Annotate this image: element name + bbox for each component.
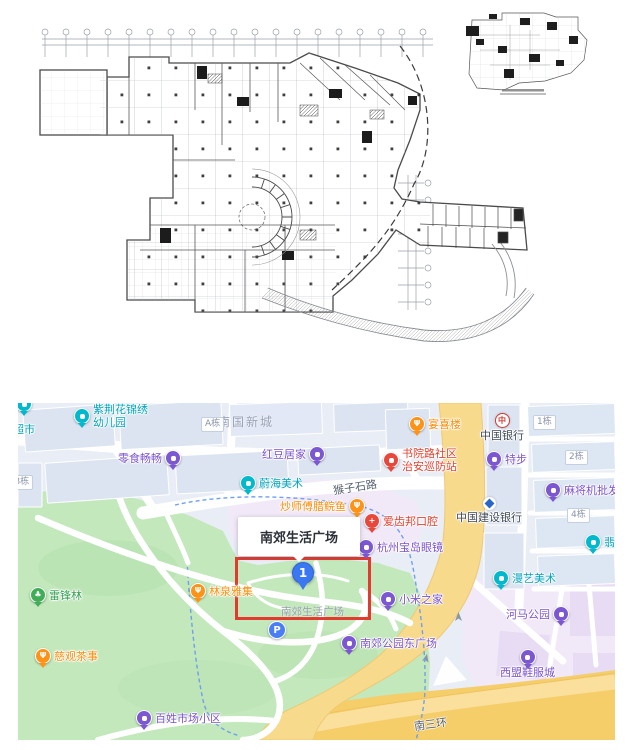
building-pill-a: A栋: [201, 417, 224, 432]
building-pill-1: 1栋: [533, 415, 556, 430]
building-pill-b: B栋: [18, 475, 33, 490]
district-label: 南国新城: [218, 413, 274, 430]
store-pin-icon: [520, 649, 536, 665]
poi-baixing[interactable]: 百姓市场小区: [136, 710, 221, 726]
popup-title: 南郊生活广场: [260, 527, 338, 546]
poi-manyi[interactable]: 漫艺美术: [493, 570, 556, 586]
poi-hongdou[interactable]: 红豆居家: [262, 446, 325, 462]
store-pin-icon: [545, 482, 561, 498]
axis-grid-top: [42, 29, 433, 57]
poi-linquan[interactable]: Ψ 林泉雅集: [190, 583, 253, 599]
store-pin-icon: [358, 539, 374, 555]
floorplan-section: [0, 0, 640, 395]
poi-supermarket[interactable]: 超市: [18, 423, 35, 436]
art-pin-icon: [240, 475, 256, 491]
food-pin-icon: Ψ: [409, 416, 425, 432]
art-pin-icon: [493, 570, 509, 586]
food-pin-icon: Ψ: [35, 648, 51, 664]
poi-leifenglin[interactable]: ♣ 雷锋林: [30, 587, 82, 603]
keyplan-inset: [466, 13, 587, 94]
building-pill-4: 4栋: [567, 508, 590, 523]
store-pin-icon: [380, 591, 396, 607]
poi-yanxilou[interactable]: Ψ 宴喜楼: [409, 416, 461, 432]
tree-pin-icon: ♣: [30, 587, 46, 603]
food-pin-icon: Ψ: [349, 498, 365, 514]
poi-kindergarten[interactable]: 紫荆花锦绣 幼儿园: [74, 403, 148, 429]
map-marker-icon[interactable]: 1: [292, 562, 314, 584]
park-pin-icon: [553, 606, 569, 622]
bank-logo-icon: [483, 497, 496, 510]
poi-ccb-bank[interactable]: 中国建设银行: [456, 497, 522, 524]
map-section[interactable]: 南郊生活广场 1 P 南郊生活广场 南国新城 猴子石路 南三环 A栋 B栋 1栋…: [18, 403, 615, 740]
clinic-pin-icon: +: [364, 513, 380, 529]
poi-weihai[interactable]: 蔚海美术: [240, 475, 303, 491]
store-pin-icon: [585, 534, 601, 550]
poi-bank-of-china[interactable]: 中 中国银行: [480, 413, 524, 442]
poi-chaoshifu[interactable]: 炒师傅腊鲩鱼 Ψ: [280, 498, 365, 514]
building-pill-2: 2栋: [565, 450, 588, 465]
poi-ximeng[interactable]: 西盟鞋服城: [500, 649, 555, 679]
store-pin-icon: [165, 450, 181, 466]
poi-corner[interactable]: [18, 403, 32, 412]
food-pin-icon: Ψ: [190, 583, 206, 599]
poi-baodao[interactable]: 杭州宝岛眼镜: [358, 539, 443, 555]
residence-pin-icon: [136, 710, 152, 726]
police-pin-icon: [383, 452, 399, 468]
store-pin-icon: [309, 446, 325, 462]
poi-dongguangchang[interactable]: 南郊公园东广场: [341, 635, 437, 651]
poi-shuyuan-station[interactable]: 书院路社区 治安巡防站: [383, 447, 457, 473]
poi-aichibang[interactable]: + 爱齿邦口腔: [364, 513, 438, 529]
store-pin-icon: [18, 403, 32, 412]
store-pin-icon: [486, 451, 502, 467]
bank-logo-icon: 中: [495, 413, 510, 428]
poi-tebu[interactable]: 特步: [486, 451, 527, 467]
poi-lingshi[interactable]: 零食畅畅: [118, 450, 181, 466]
ground-place-label: 南郊生活广场: [281, 604, 344, 619]
poi-ciguan[interactable]: Ψ 慈观茶事: [35, 648, 98, 664]
parking-icon[interactable]: P: [268, 621, 286, 639]
poi-majiang[interactable]: 麻将机批发: [545, 482, 615, 498]
poi-feicui[interactable]: 翡翠: [585, 534, 615, 550]
plaza-pin-icon: [341, 635, 357, 651]
page: 南郊生活广场 1 P 南郊生活广场 南国新城 猴子石路 南三环 A栋 B栋 1栋…: [0, 0, 640, 750]
poi-xiaomi[interactable]: 小米之家: [380, 591, 443, 607]
school-pin-icon: [74, 408, 90, 424]
floorplan-svg: [0, 0, 640, 395]
poi-hema[interactable]: 河马公园: [506, 606, 569, 622]
place-popup[interactable]: 南郊生活广场: [238, 517, 360, 556]
